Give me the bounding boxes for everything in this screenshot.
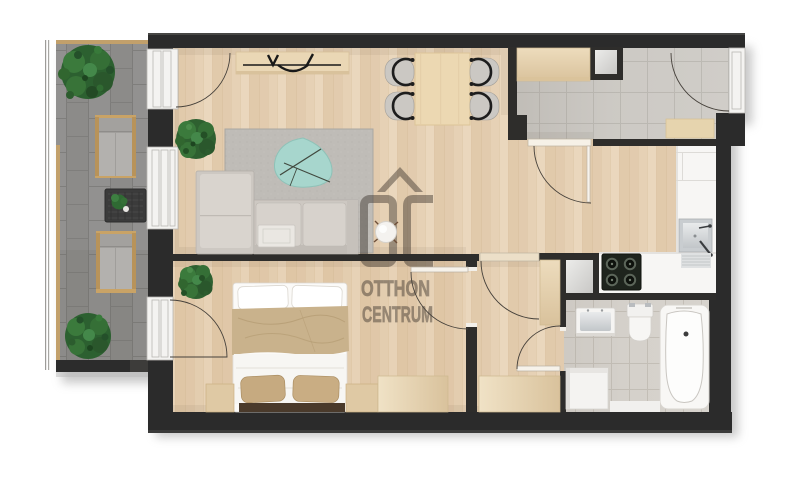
- svg-text:OTTHON: OTTHON: [361, 276, 430, 301]
